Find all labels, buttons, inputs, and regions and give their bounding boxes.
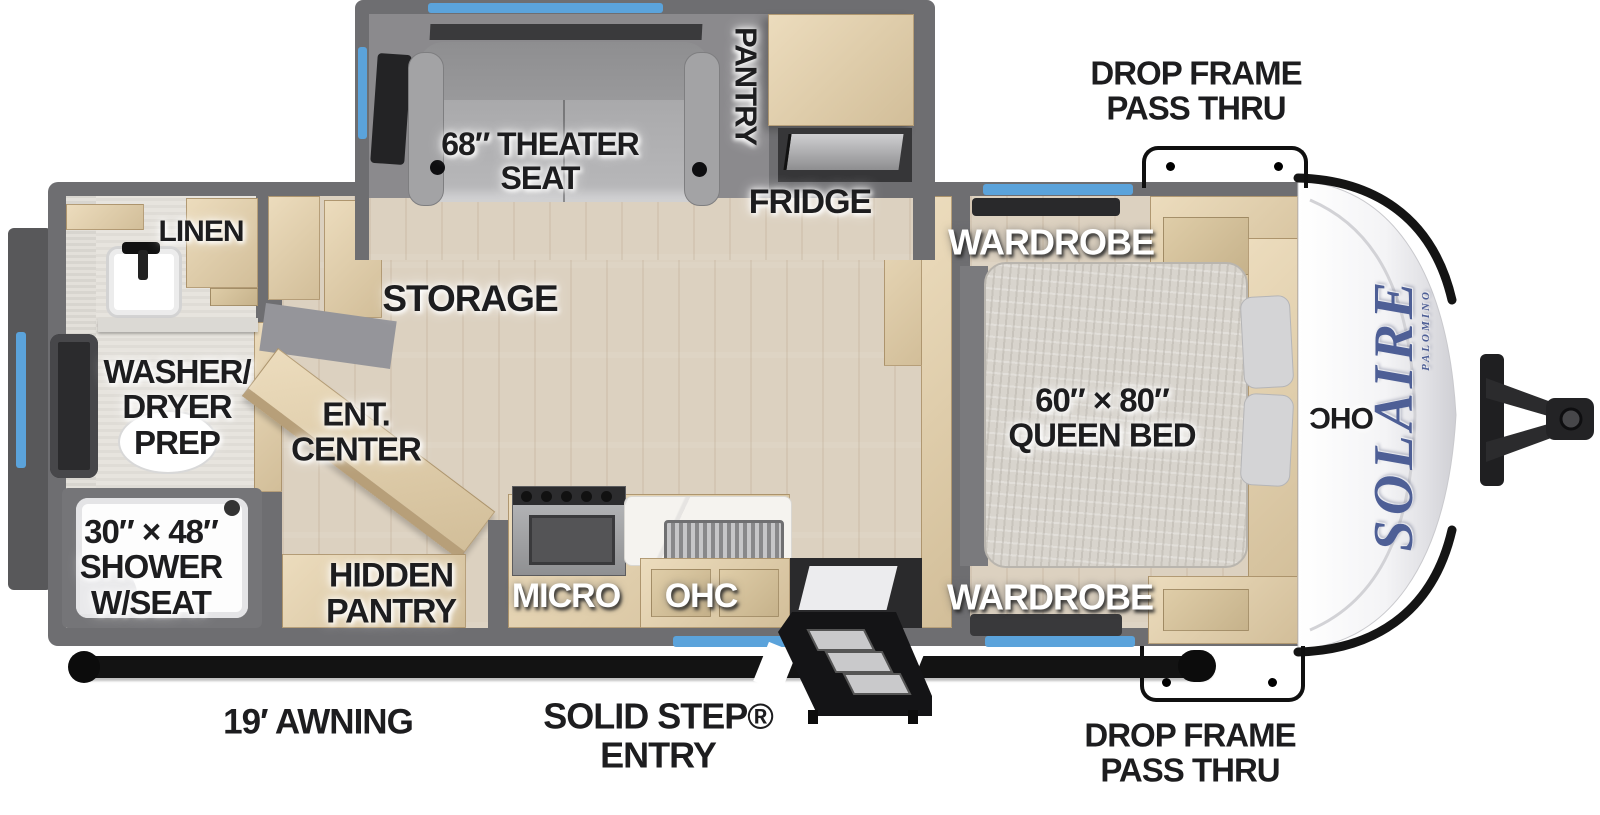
wardrobe-panel xyxy=(1163,589,1249,631)
label-linen: LINEN xyxy=(159,216,244,248)
label-ohc-kitchen: OHC xyxy=(665,578,738,614)
pass-thru-outline-top xyxy=(1142,146,1308,188)
label-pantry: PANTRY xyxy=(729,27,762,145)
washer-dryer-unit xyxy=(50,334,98,478)
bathroom-counter-divider xyxy=(98,318,258,332)
stove xyxy=(512,486,626,576)
label-fridge: FRIDGE xyxy=(749,184,871,220)
shower-head-icon xyxy=(224,500,240,516)
awning-rod xyxy=(78,656,1214,678)
step-tread xyxy=(826,652,892,672)
awning-end-cap-right xyxy=(1178,650,1216,682)
bedroom-bottom-window xyxy=(985,636,1135,647)
rivet-icon xyxy=(1162,678,1171,687)
kitchen-stub-wall xyxy=(488,520,508,628)
awning-end-cap-left xyxy=(68,651,100,683)
rivet-icon xyxy=(1166,162,1175,171)
label-hidden-pantry: HIDDEN PANTRY xyxy=(326,558,456,631)
theater-seat-armrest-right xyxy=(684,52,720,206)
label-ent-center: ENT. CENTER xyxy=(291,397,421,468)
bedroom-tv xyxy=(972,198,1120,216)
entry-steps xyxy=(778,612,938,724)
rivet-icon xyxy=(1268,678,1277,687)
label-micro: MICRO xyxy=(512,578,620,614)
brand-logo: SOLAIRE xyxy=(1362,277,1426,552)
rear-bumper xyxy=(8,228,52,590)
rear-window xyxy=(16,332,26,468)
label-drop-frame-bottom: DROP FRAME PASS THRU xyxy=(1084,718,1295,789)
fridge xyxy=(778,128,912,182)
burner-icon xyxy=(561,491,572,502)
slideout-side-window xyxy=(358,47,367,139)
label-wardrobe-bottom: WARDROBE xyxy=(947,579,1153,618)
floorplan-canvas: DROP FRAME PASS THRU DROP FRAME PASS THR… xyxy=(0,0,1600,815)
fridge-open-door xyxy=(783,134,903,170)
bedroom-top-window xyxy=(983,184,1133,195)
linen-overhead-cabinet xyxy=(66,204,144,230)
label-awning: 19′ AWNING xyxy=(223,703,413,740)
step-tread xyxy=(808,630,874,650)
step-leg xyxy=(808,710,818,724)
oven-window xyxy=(529,515,615,565)
step-tread xyxy=(844,674,910,694)
linen-shelf xyxy=(210,288,258,306)
burner-icon xyxy=(581,491,592,502)
label-storage: STORAGE xyxy=(382,279,557,319)
cupholder-icon xyxy=(692,162,707,177)
label-theater-seat: 68″ THEATER SEAT xyxy=(441,127,639,195)
label-solid-step: SOLID STEP® ENTRY xyxy=(543,697,773,774)
hitch-bracket xyxy=(1480,354,1504,486)
faucet-stem xyxy=(138,250,148,280)
burner-icon xyxy=(541,491,552,502)
burner-icon xyxy=(601,491,612,502)
burner-icon xyxy=(521,491,532,502)
brand-sub-logo: PALOMINO xyxy=(1420,289,1432,371)
theater-seat-armrest-left xyxy=(408,52,444,206)
label-washer-dryer: WASHER/ DRYER PREP xyxy=(103,354,250,460)
rivet-icon xyxy=(1274,162,1283,171)
soundbar xyxy=(430,24,703,40)
slideout-top-window xyxy=(428,3,663,13)
step-leg xyxy=(908,710,918,724)
label-queen-bed: 60″ × 80″ QUEEN BED xyxy=(1008,383,1195,454)
entry-landing xyxy=(799,566,898,610)
hitch-ball-icon xyxy=(1561,409,1581,429)
pantry-cabinet xyxy=(768,14,914,126)
label-drop-frame-top: DROP FRAME PASS THRU xyxy=(1090,56,1301,127)
label-wardrobe-top: WARDROBE xyxy=(948,224,1154,263)
label-shower: 30″ × 48″ SHOWER W/SEAT xyxy=(80,514,223,620)
storage-cabinet-1 xyxy=(268,196,320,300)
